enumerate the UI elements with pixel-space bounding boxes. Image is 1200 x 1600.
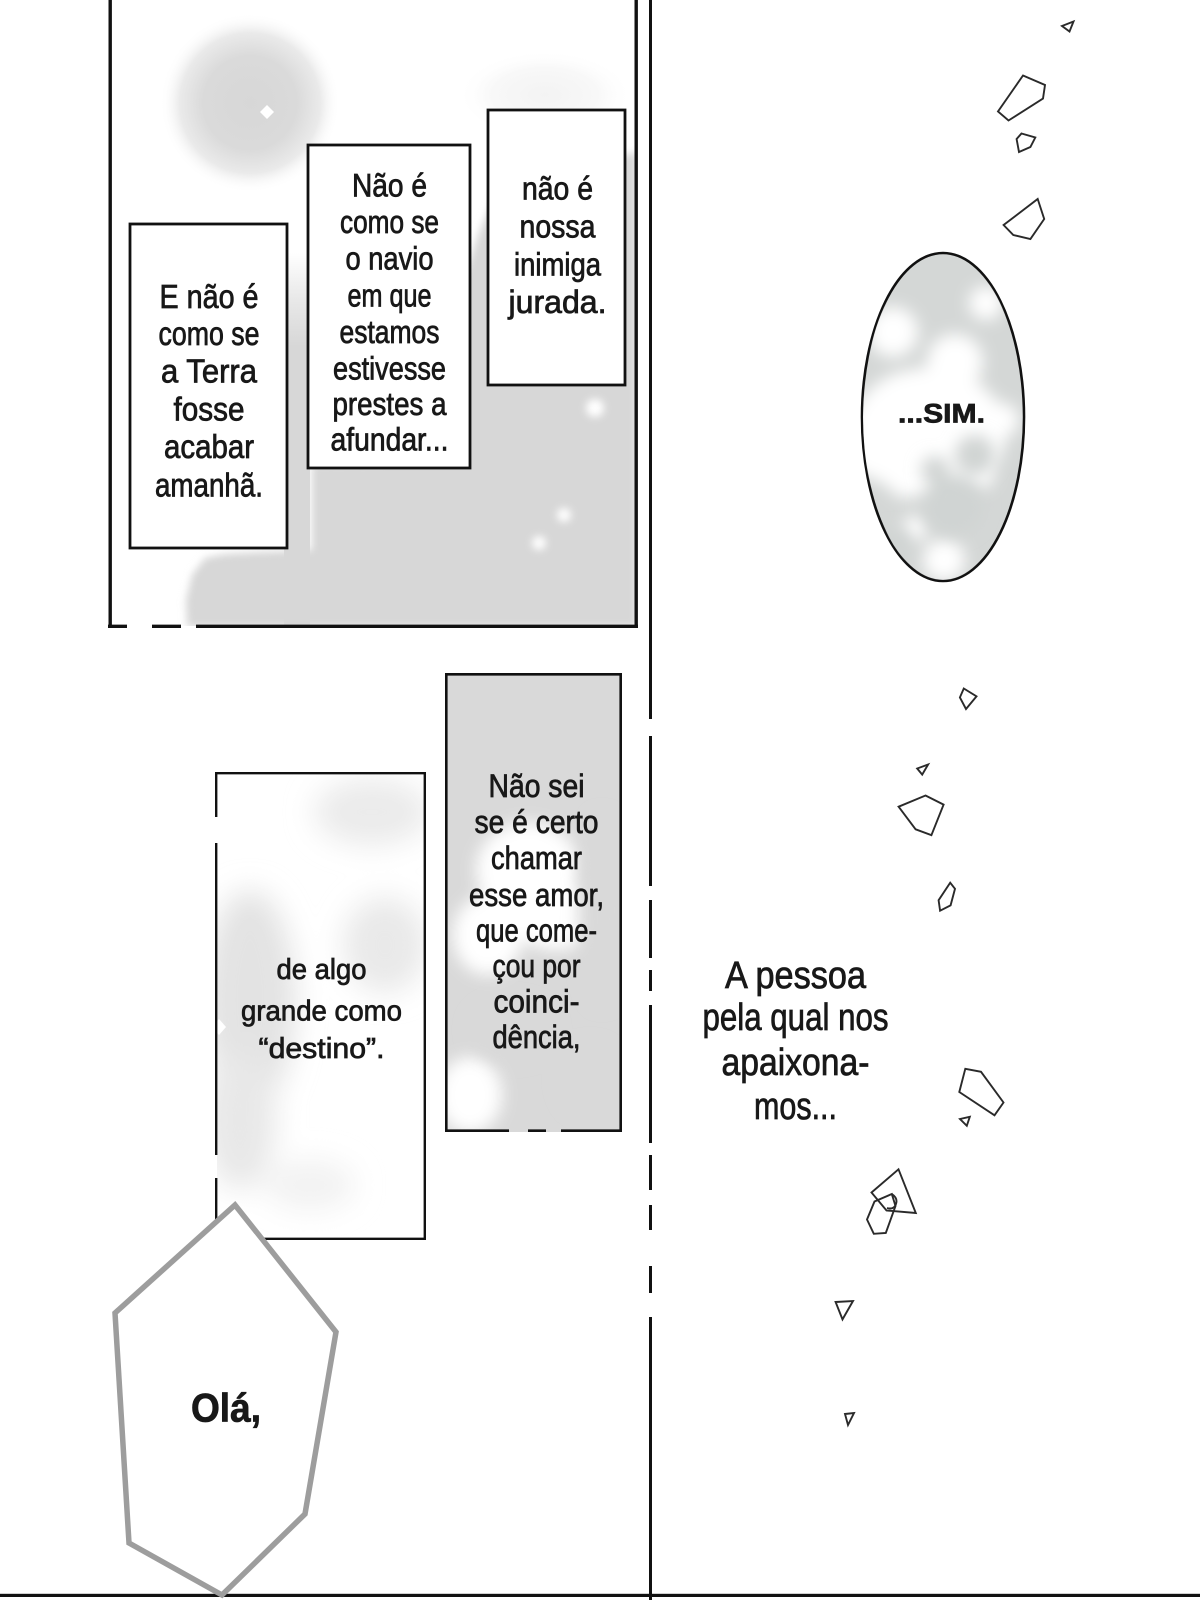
svg-text:coinci-: coinci- [494,984,580,1020]
svg-text:amanhã.: amanhã. [155,466,263,503]
svg-text:afundar...: afundar... [331,422,449,458]
svg-text:nossa: nossa [520,208,596,244]
svg-text:estamos: estamos [340,314,440,350]
svg-text:çou por: çou por [493,948,581,984]
svg-text:que come-: que come- [476,913,597,949]
svg-text:pela qual nos: pela qual nos [703,997,889,1039]
svg-text:Olá,: Olá, [191,1387,261,1431]
svg-text:de algo: de algo [277,954,367,986]
svg-text:em que: em que [348,277,432,313]
svg-text:como se: como se [159,315,260,352]
svg-text:“destino”.: “destino”. [259,1033,385,1065]
svg-text:apaixona-: apaixona- [722,1042,870,1084]
svg-text:mos...: mos... [754,1086,837,1128]
svg-text:estivesse: estivesse [333,350,446,386]
svg-text:dência,: dência, [493,1019,581,1055]
svg-text:A pessoa: A pessoa [725,955,867,997]
svg-text:prestes a: prestes a [333,386,447,422]
svg-text:esse amor,: esse amor, [469,877,604,913]
svg-text:não é: não é [522,171,593,207]
svg-text:Não é: Não é [352,168,427,204]
svg-text:E não é: E não é [160,278,259,315]
svg-text:inimiga: inimiga [514,247,601,283]
svg-text:jurada.: jurada. [507,284,606,320]
svg-text:Não sei: Não sei [489,768,585,804]
svg-text:chamar: chamar [491,840,582,876]
svg-text:acabar: acabar [164,428,254,465]
svg-text:fosse: fosse [174,391,245,428]
svg-text:como se: como se [340,204,439,240]
svg-text:o navio: o navio [346,241,434,277]
svg-text:grande como: grande como [241,996,402,1028]
svg-text:a Terra: a Terra [161,353,258,390]
svg-text:se é certo: se é certo [475,804,599,840]
svg-text:...SIM.: ...SIM. [898,399,985,429]
